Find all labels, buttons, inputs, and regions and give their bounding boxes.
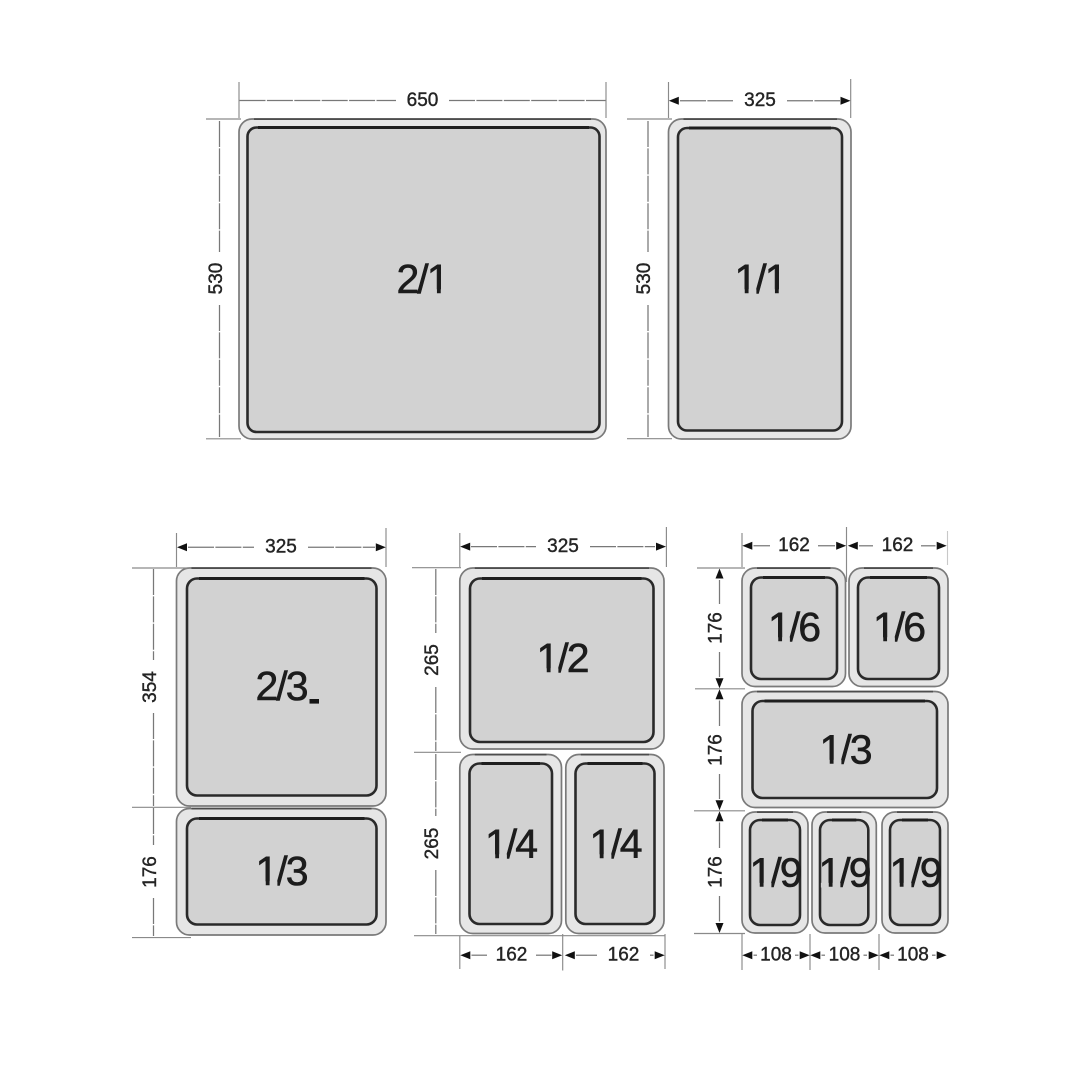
svg-text:1/2: 1/2 [537, 635, 588, 681]
svg-text:108: 108 [897, 945, 929, 966]
svg-text:162: 162 [778, 535, 810, 556]
svg-text:354: 354 [140, 671, 161, 703]
svg-text:2/1: 2/1 [397, 256, 448, 302]
svg-text:1/9: 1/9 [750, 850, 801, 896]
svg-text:1/6: 1/6 [873, 604, 924, 650]
svg-text:1/9: 1/9 [890, 850, 941, 896]
svg-text:1/3: 1/3 [820, 727, 871, 773]
svg-text:176: 176 [706, 612, 727, 644]
svg-text:1/4: 1/4 [590, 821, 642, 867]
svg-text:530: 530 [206, 263, 227, 295]
svg-text:1/6: 1/6 [768, 604, 819, 650]
svg-text:1/1: 1/1 [735, 256, 786, 302]
svg-text:176: 176 [706, 856, 727, 888]
svg-text:265: 265 [422, 828, 443, 860]
svg-text:176: 176 [140, 856, 161, 888]
svg-text:2/3: 2/3 [256, 663, 307, 709]
svg-text:176: 176 [706, 734, 727, 766]
svg-text:325: 325 [265, 537, 297, 558]
svg-text:325: 325 [547, 536, 579, 557]
svg-text:108: 108 [829, 945, 861, 966]
svg-text:1/9: 1/9 [819, 850, 870, 896]
svg-text:162: 162 [608, 945, 640, 966]
svg-text:1/4: 1/4 [485, 821, 537, 867]
svg-text:530: 530 [634, 263, 655, 295]
svg-text:162: 162 [496, 945, 528, 966]
svg-text:265: 265 [422, 644, 443, 676]
svg-text:1/3: 1/3 [256, 848, 307, 894]
svg-text:650: 650 [407, 90, 439, 111]
svg-text:162: 162 [882, 535, 914, 556]
svg-text:108: 108 [760, 945, 792, 966]
svg-text:325: 325 [744, 90, 776, 111]
